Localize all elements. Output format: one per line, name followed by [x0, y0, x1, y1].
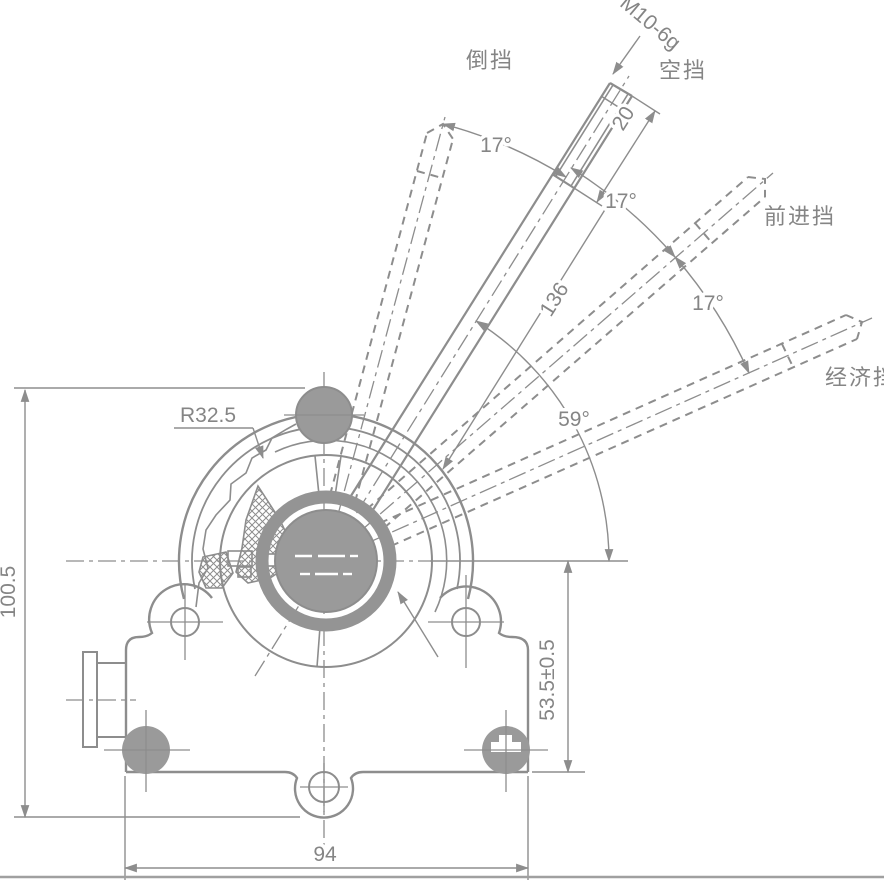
top-boss — [284, 387, 364, 443]
arc-17-forward-economy — [675, 257, 749, 373]
hub-bore — [275, 510, 377, 612]
lever-axis — [363, 318, 872, 545]
drawing-sheet: 倒挡 空挡 前进挡 经济挡 M10-6g 20 136 17° 17° 17° … — [0, 0, 884, 880]
bracket-bottom-outline — [126, 772, 528, 818]
dim-lever-length: 136 — [535, 279, 573, 321]
lever-axis — [336, 117, 445, 522]
dim-pivot-height: 53.5±0.5 — [536, 639, 559, 721]
dim-thread-length: 20 — [608, 103, 640, 135]
technical-drawing: 倒挡 空挡 前进挡 经济挡 M10-6g 20 136 17° 17° 17° … — [0, 0, 884, 880]
label-forward-gear: 前进挡 — [764, 204, 836, 229]
dim-angle-horizontal: 59° — [558, 408, 590, 431]
dim-mounting-width: 94 — [313, 843, 337, 866]
label-reverse-gear: 倒挡 — [466, 48, 514, 73]
radial-line — [317, 627, 320, 667]
pivot-hub — [262, 497, 390, 625]
dim-angle-reverse-neutral: 17° — [480, 134, 512, 157]
dim-thread-spec: M10-6g — [616, 0, 685, 55]
label-neutral-gear: 空挡 — [659, 58, 707, 83]
dim-overall-height: 100.5 — [0, 566, 20, 619]
dim-angle-neutral-forward: 17° — [605, 190, 637, 213]
ext-line — [574, 188, 602, 206]
ext-line — [632, 96, 660, 114]
dim-housing-radius: R32.5 — [180, 404, 236, 427]
lever-axis — [356, 173, 773, 535]
lever-economy — [363, 315, 872, 546]
lever-forward — [356, 173, 773, 535]
leader-thread-spec — [613, 36, 640, 74]
radial-line — [315, 456, 319, 495]
center-lines — [66, 372, 430, 852]
leader-hub — [398, 592, 438, 657]
dim-angle-forward-economy: 17° — [692, 292, 724, 315]
arc-59 — [476, 321, 609, 561]
label-economy-gear: 经济挡 — [825, 365, 884, 390]
mounting-pads — [104, 710, 548, 792]
